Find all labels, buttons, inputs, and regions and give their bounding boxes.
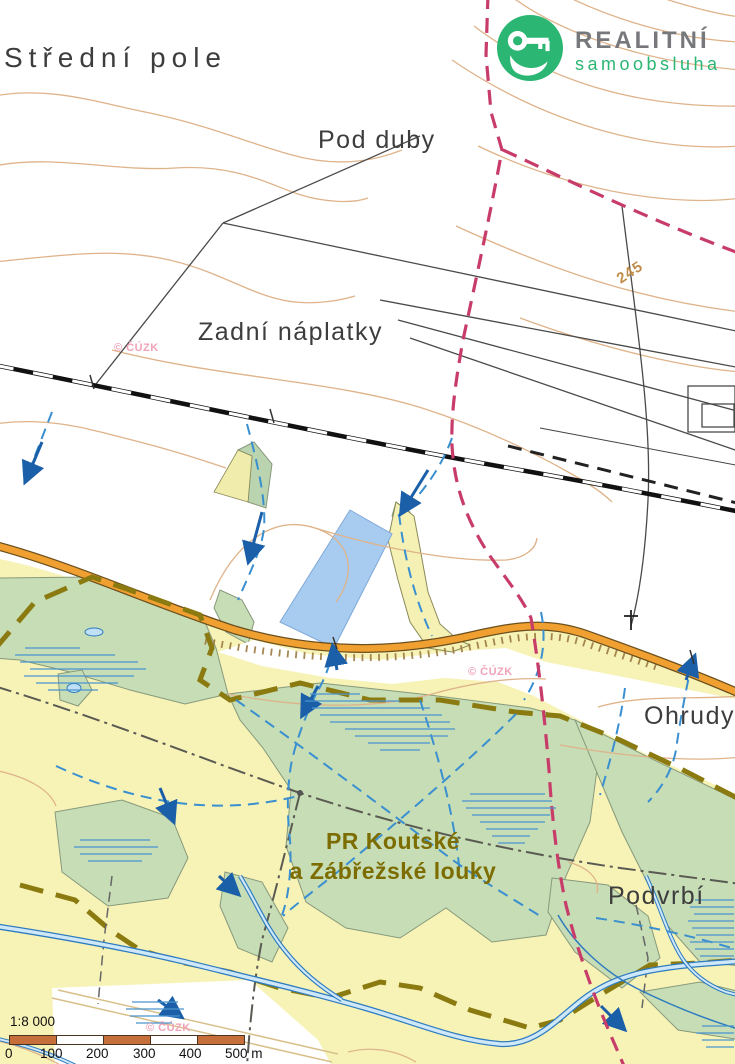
place-label-stredni-pole: Střední pole — [4, 42, 227, 74]
logo: REALITNÍ samoobsluha — [497, 15, 721, 81]
scale-tick-300: 300 — [133, 1046, 156, 1061]
railway-line — [0, 365, 735, 512]
place-label-podvrbi: Podvrbí — [608, 882, 705, 911]
scale-segment — [198, 1036, 244, 1044]
place-label-zadni-naplatky: Zadní náplatky — [198, 318, 383, 347]
place-label-nature-reserve: PR Koutské a Zábřežské louky — [268, 826, 518, 886]
key-in-hand-icon — [497, 15, 563, 81]
reserve-label-line2: a Zábřežské louky — [268, 856, 518, 886]
copyright-watermark: © ČÚZK — [114, 342, 159, 354]
boundary-node — [297, 790, 303, 796]
wayside-cross-icon — [624, 610, 638, 630]
scale-segment — [104, 1036, 151, 1044]
scale-segment — [10, 1036, 57, 1044]
place-label-pod-duby: Pod duby — [318, 126, 436, 155]
scale-tick-100: 100 — [40, 1046, 63, 1061]
map-screenshot: Střední pole Pod duby Zadní náplatky Ohr… — [0, 0, 735, 1064]
scale-segment — [57, 1036, 104, 1044]
scale-segment — [151, 1036, 198, 1044]
scale-bar-segments — [9, 1035, 245, 1045]
small-field-polygon — [214, 450, 252, 502]
copyright-watermark: © ČÚZK — [468, 666, 513, 678]
scale-tick-400: 400 — [179, 1046, 202, 1061]
scale-ratio: 1:8 000 — [10, 1014, 55, 1029]
place-label-ohrudy: Ohrudy — [644, 702, 735, 731]
scale-tick-500: 500 m — [225, 1046, 263, 1061]
scale-tick-0: 0 — [5, 1046, 13, 1061]
brand-name: REALITNÍ — [575, 29, 721, 53]
reserve-label-line1: PR Koutské — [268, 826, 518, 856]
brand-subtitle: samoobsluha — [575, 53, 721, 75]
scale-bar: 1:8 000 0 100 200 300 400 500 m — [0, 1012, 300, 1064]
scale-tick-200: 200 — [86, 1046, 109, 1061]
